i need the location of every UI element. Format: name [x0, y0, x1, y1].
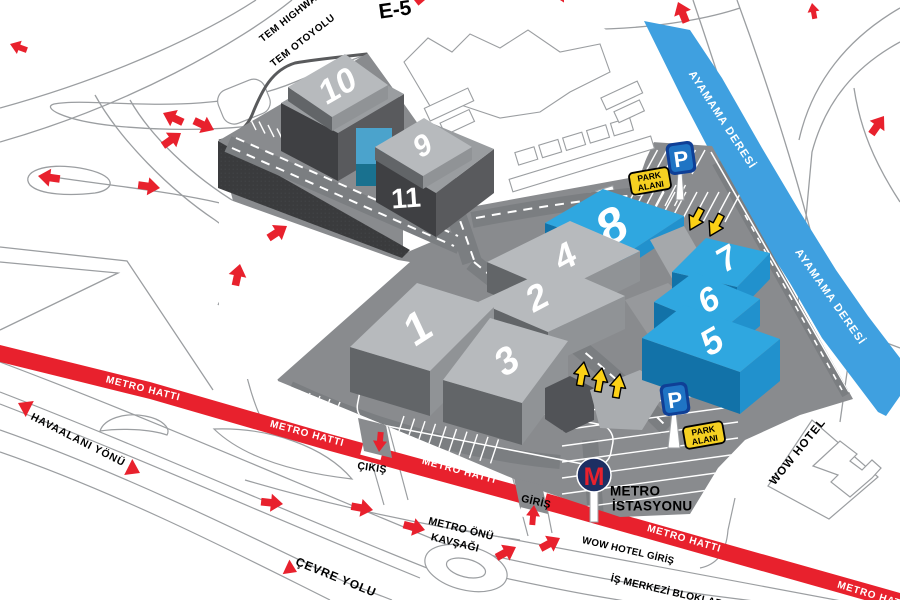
svg-text:METRO: METRO [610, 484, 660, 499]
svg-text:İSTASYONU: İSTASYONU [612, 499, 692, 514]
svg-text:M: M [584, 463, 605, 491]
svg-text:11: 11 [390, 182, 422, 215]
